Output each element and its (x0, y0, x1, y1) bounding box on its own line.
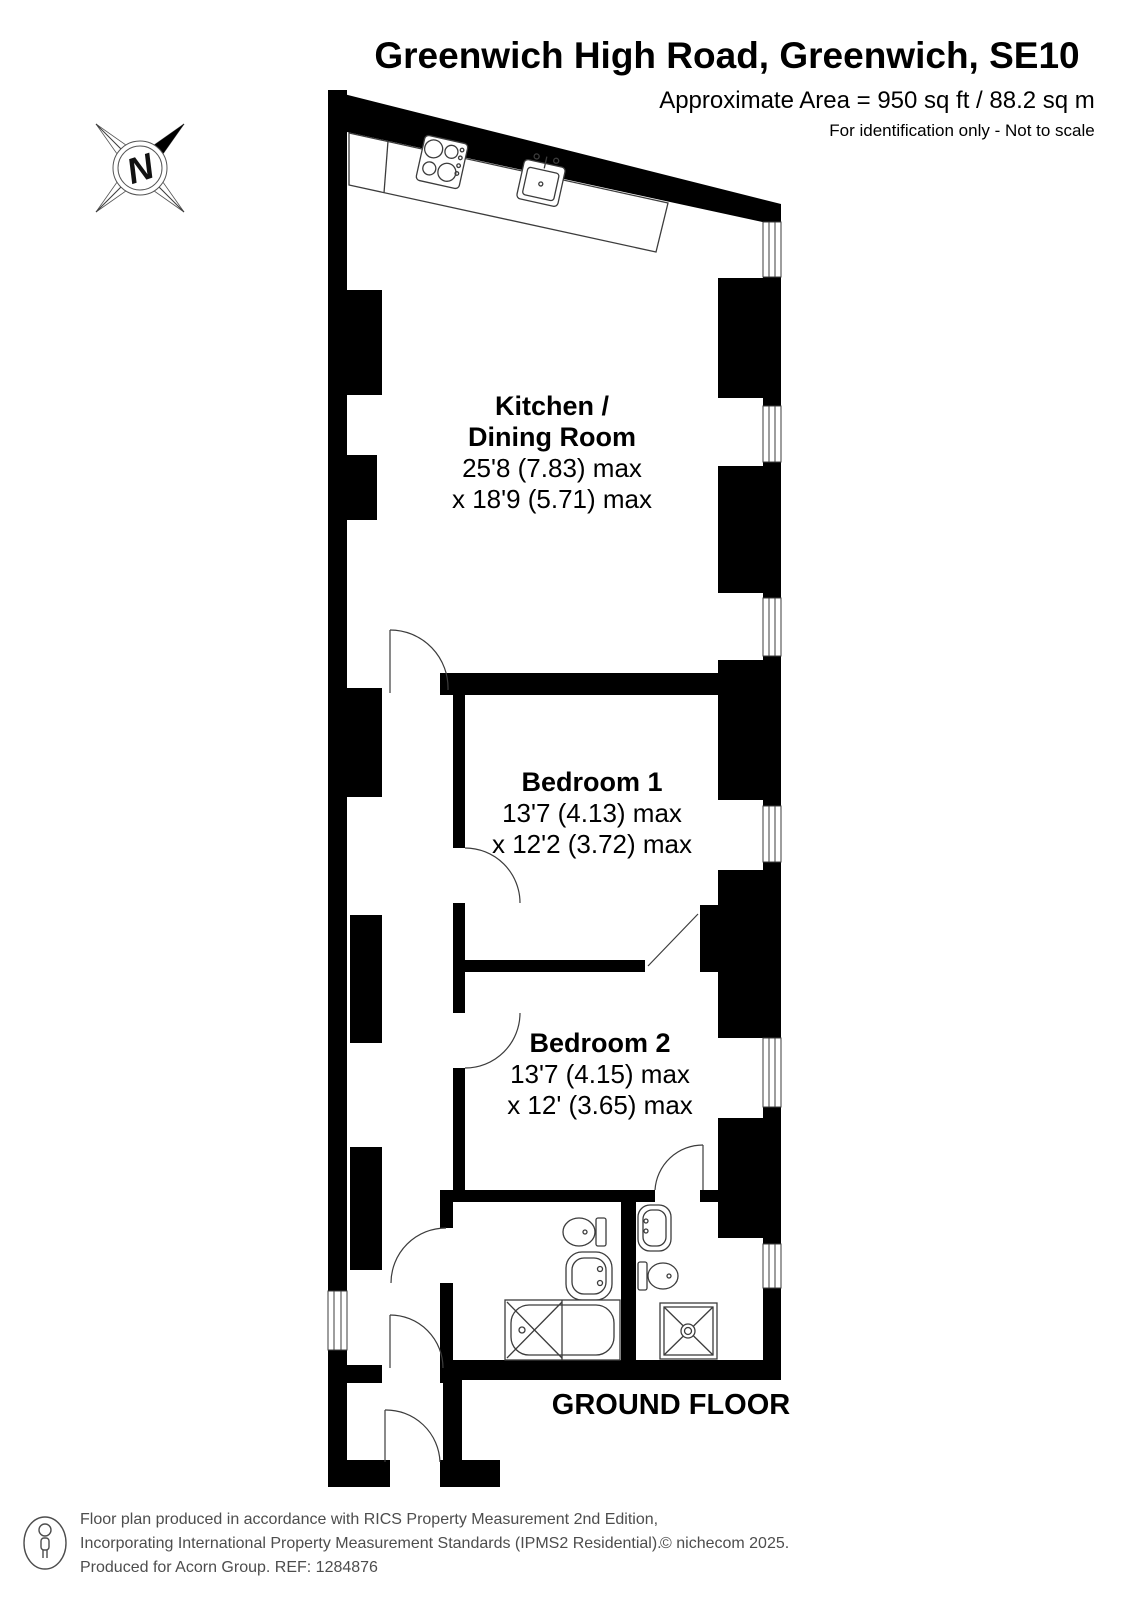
room-name: Kitchen / (495, 391, 610, 421)
room-dimension: x 18'9 (5.71) max (452, 484, 652, 514)
wall-segment (440, 1283, 453, 1360)
door-arc (655, 1145, 703, 1190)
wall-segment (700, 905, 718, 972)
window (763, 222, 781, 277)
wall-segment (700, 1190, 718, 1202)
door-arc (390, 630, 448, 690)
hob-icon (416, 135, 469, 189)
wall-segment (440, 1360, 781, 1380)
door-arc (391, 1228, 446, 1283)
wall-segment (453, 903, 465, 1013)
room-name: Dining Room (468, 422, 636, 452)
wall-segment (347, 290, 382, 395)
wall-segment (347, 455, 377, 520)
wall-segment (718, 466, 763, 593)
person-icon (24, 1517, 66, 1569)
room-dimension: 13'7 (4.13) max (502, 798, 682, 828)
window (763, 406, 781, 462)
floor-plan-canvas: Greenwich High Road, Greenwich, SE10 App… (0, 0, 1131, 1600)
room-dimension: x 12'2 (3.72) max (492, 829, 692, 859)
window (763, 598, 781, 656)
wall-segment (718, 1118, 763, 1238)
room-name: Bedroom 1 (521, 767, 662, 797)
basin-icon (566, 1252, 612, 1300)
wall-segment (350, 915, 382, 1043)
footer-copyright: © nichecom 2025. (660, 1535, 789, 1552)
footer-line-3: Produced for Acorn Group. REF: 1284876 (80, 1559, 378, 1576)
footer-line-1: Floor plan produced in accordance with R… (80, 1511, 658, 1528)
door-arc (385, 1410, 440, 1462)
floor-plan-page: Greenwich High Road, Greenwich, SE10 App… (0, 0, 1131, 1600)
toilet-icon (638, 1262, 678, 1290)
room-label-bedroom2: Bedroom 2 13'7 (4.15) max x 12' (3.65) m… (507, 1028, 693, 1120)
compass-icon: N (96, 124, 184, 212)
wall-segment (453, 1068, 465, 1190)
footer: Floor plan produced in accordance with R… (24, 1511, 789, 1576)
bathtub-icon (505, 1300, 620, 1360)
wall-segment (440, 1190, 453, 1228)
wall-segment (350, 1147, 382, 1270)
window (328, 1291, 347, 1350)
wall-segment (328, 90, 347, 1487)
basin-icon (638, 1205, 671, 1251)
room-dimension: 25'8 (7.83) max (462, 453, 642, 483)
room-dimension: 13'7 (4.15) max (510, 1059, 690, 1089)
wall-segment (440, 1460, 500, 1487)
wall-segment (763, 204, 781, 1380)
shower-icon (660, 1303, 717, 1359)
wall-segment (453, 695, 465, 848)
wall-segment (453, 960, 645, 972)
wall-segment (347, 688, 382, 797)
wall-segment (347, 1365, 382, 1383)
approximate-area-text: Approximate Area = 950 sq ft / 88.2 sq m (659, 87, 1095, 114)
wall-segment (718, 278, 763, 398)
wall-segment (443, 1380, 462, 1460)
wall-segment (718, 870, 763, 1038)
footer-line-2: Incorporating International Property Mea… (80, 1535, 662, 1552)
disclaimer-text: For identification only - Not to scale (829, 121, 1095, 140)
page-title: Greenwich High Road, Greenwich, SE10 (374, 35, 1079, 76)
wall-segment (440, 673, 763, 695)
floor-label: GROUND FLOOR (552, 1389, 790, 1421)
room-dimension: x 12' (3.65) max (507, 1090, 693, 1120)
wall-segment (330, 1460, 390, 1487)
room-name: Bedroom 2 (529, 1028, 670, 1058)
window (763, 1244, 781, 1288)
toilet-icon (563, 1218, 606, 1246)
room-label-kitchen: Kitchen / Dining Room 25'8 (7.83) max x … (452, 391, 652, 514)
window (763, 806, 781, 862)
window (763, 1038, 781, 1107)
room-label-bedroom1: Bedroom 1 13'7 (4.13) max x 12'2 (3.72) … (492, 767, 692, 859)
door-arc (390, 1315, 443, 1368)
door-leaf (648, 914, 698, 966)
wall-segment (621, 1190, 636, 1360)
